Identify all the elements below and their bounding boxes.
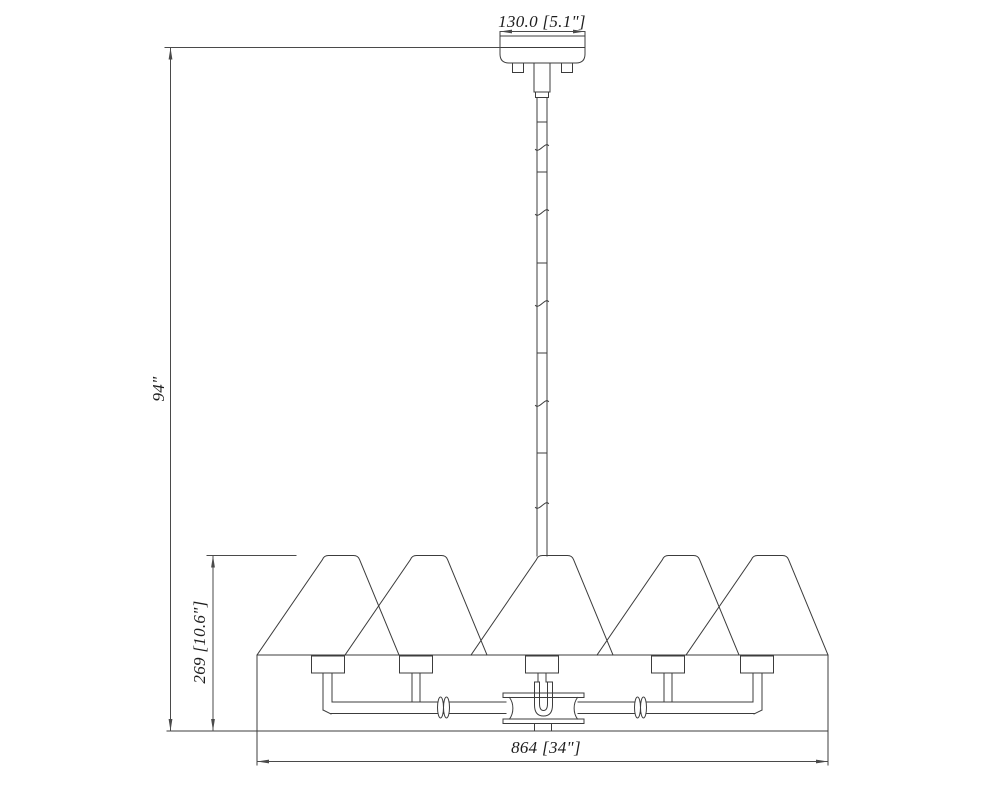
socket-cups	[312, 656, 774, 673]
canopy-tab-left	[513, 63, 524, 73]
lamp-shades	[257, 556, 828, 656]
lamp-shade-1	[257, 556, 399, 656]
dim-label-canopy-width: 130.0 [5.1"]	[498, 12, 586, 32]
socket-cup-1	[312, 656, 345, 673]
canopy-collar	[534, 63, 550, 92]
arm-coupling-left	[438, 697, 450, 718]
lamp-shade-5	[686, 556, 828, 656]
technical-drawing-chandelier-elevation: 130.0 [5.1"] 94" 269 [10.6"] 864 [34"]	[0, 0, 1000, 800]
arrowhead-down-icon	[169, 719, 173, 731]
dimension-overall-height	[165, 48, 500, 732]
lamp-shade-3	[471, 556, 613, 656]
hub-loop-inner	[540, 682, 548, 711]
canopy-outline	[500, 32, 585, 98]
hub-top-plate	[503, 693, 584, 698]
lamp-shade-2	[345, 556, 487, 656]
socket-cup-4	[652, 656, 685, 673]
socket-cup-2	[400, 656, 433, 673]
dim-label-overall-height: 94"	[149, 376, 169, 401]
hub-body-right	[574, 698, 577, 720]
arrowhead-up-icon	[211, 556, 215, 568]
hanging-rod	[536, 98, 549, 557]
dim-label-fixture-width: 864 [34"]	[511, 738, 581, 758]
hub-body-left	[510, 698, 513, 720]
fixture-frame	[167, 655, 828, 765]
canopy-nut	[536, 92, 549, 98]
dimension-lines	[165, 30, 828, 764]
dim-label-fixture-height: 269 [10.6"]	[190, 600, 210, 683]
hub-bottom-plate	[503, 719, 584, 724]
dimension-fixture-width	[257, 760, 828, 764]
arrowhead-up-icon	[169, 48, 173, 60]
arms	[323, 673, 762, 718]
dimension-fixture-height	[207, 556, 296, 732]
lamp-shade-4	[597, 556, 739, 656]
hub-finial	[535, 724, 552, 732]
arrowhead-left-icon	[257, 760, 269, 764]
canopy-tab-right	[562, 63, 573, 73]
center-hub	[503, 673, 584, 731]
arrowhead-right-icon	[816, 760, 828, 764]
arrowhead-down-icon	[211, 719, 215, 731]
socket-cup-5	[741, 656, 774, 673]
arm-coupling-right	[635, 697, 647, 718]
socket-cup-3	[526, 656, 559, 673]
